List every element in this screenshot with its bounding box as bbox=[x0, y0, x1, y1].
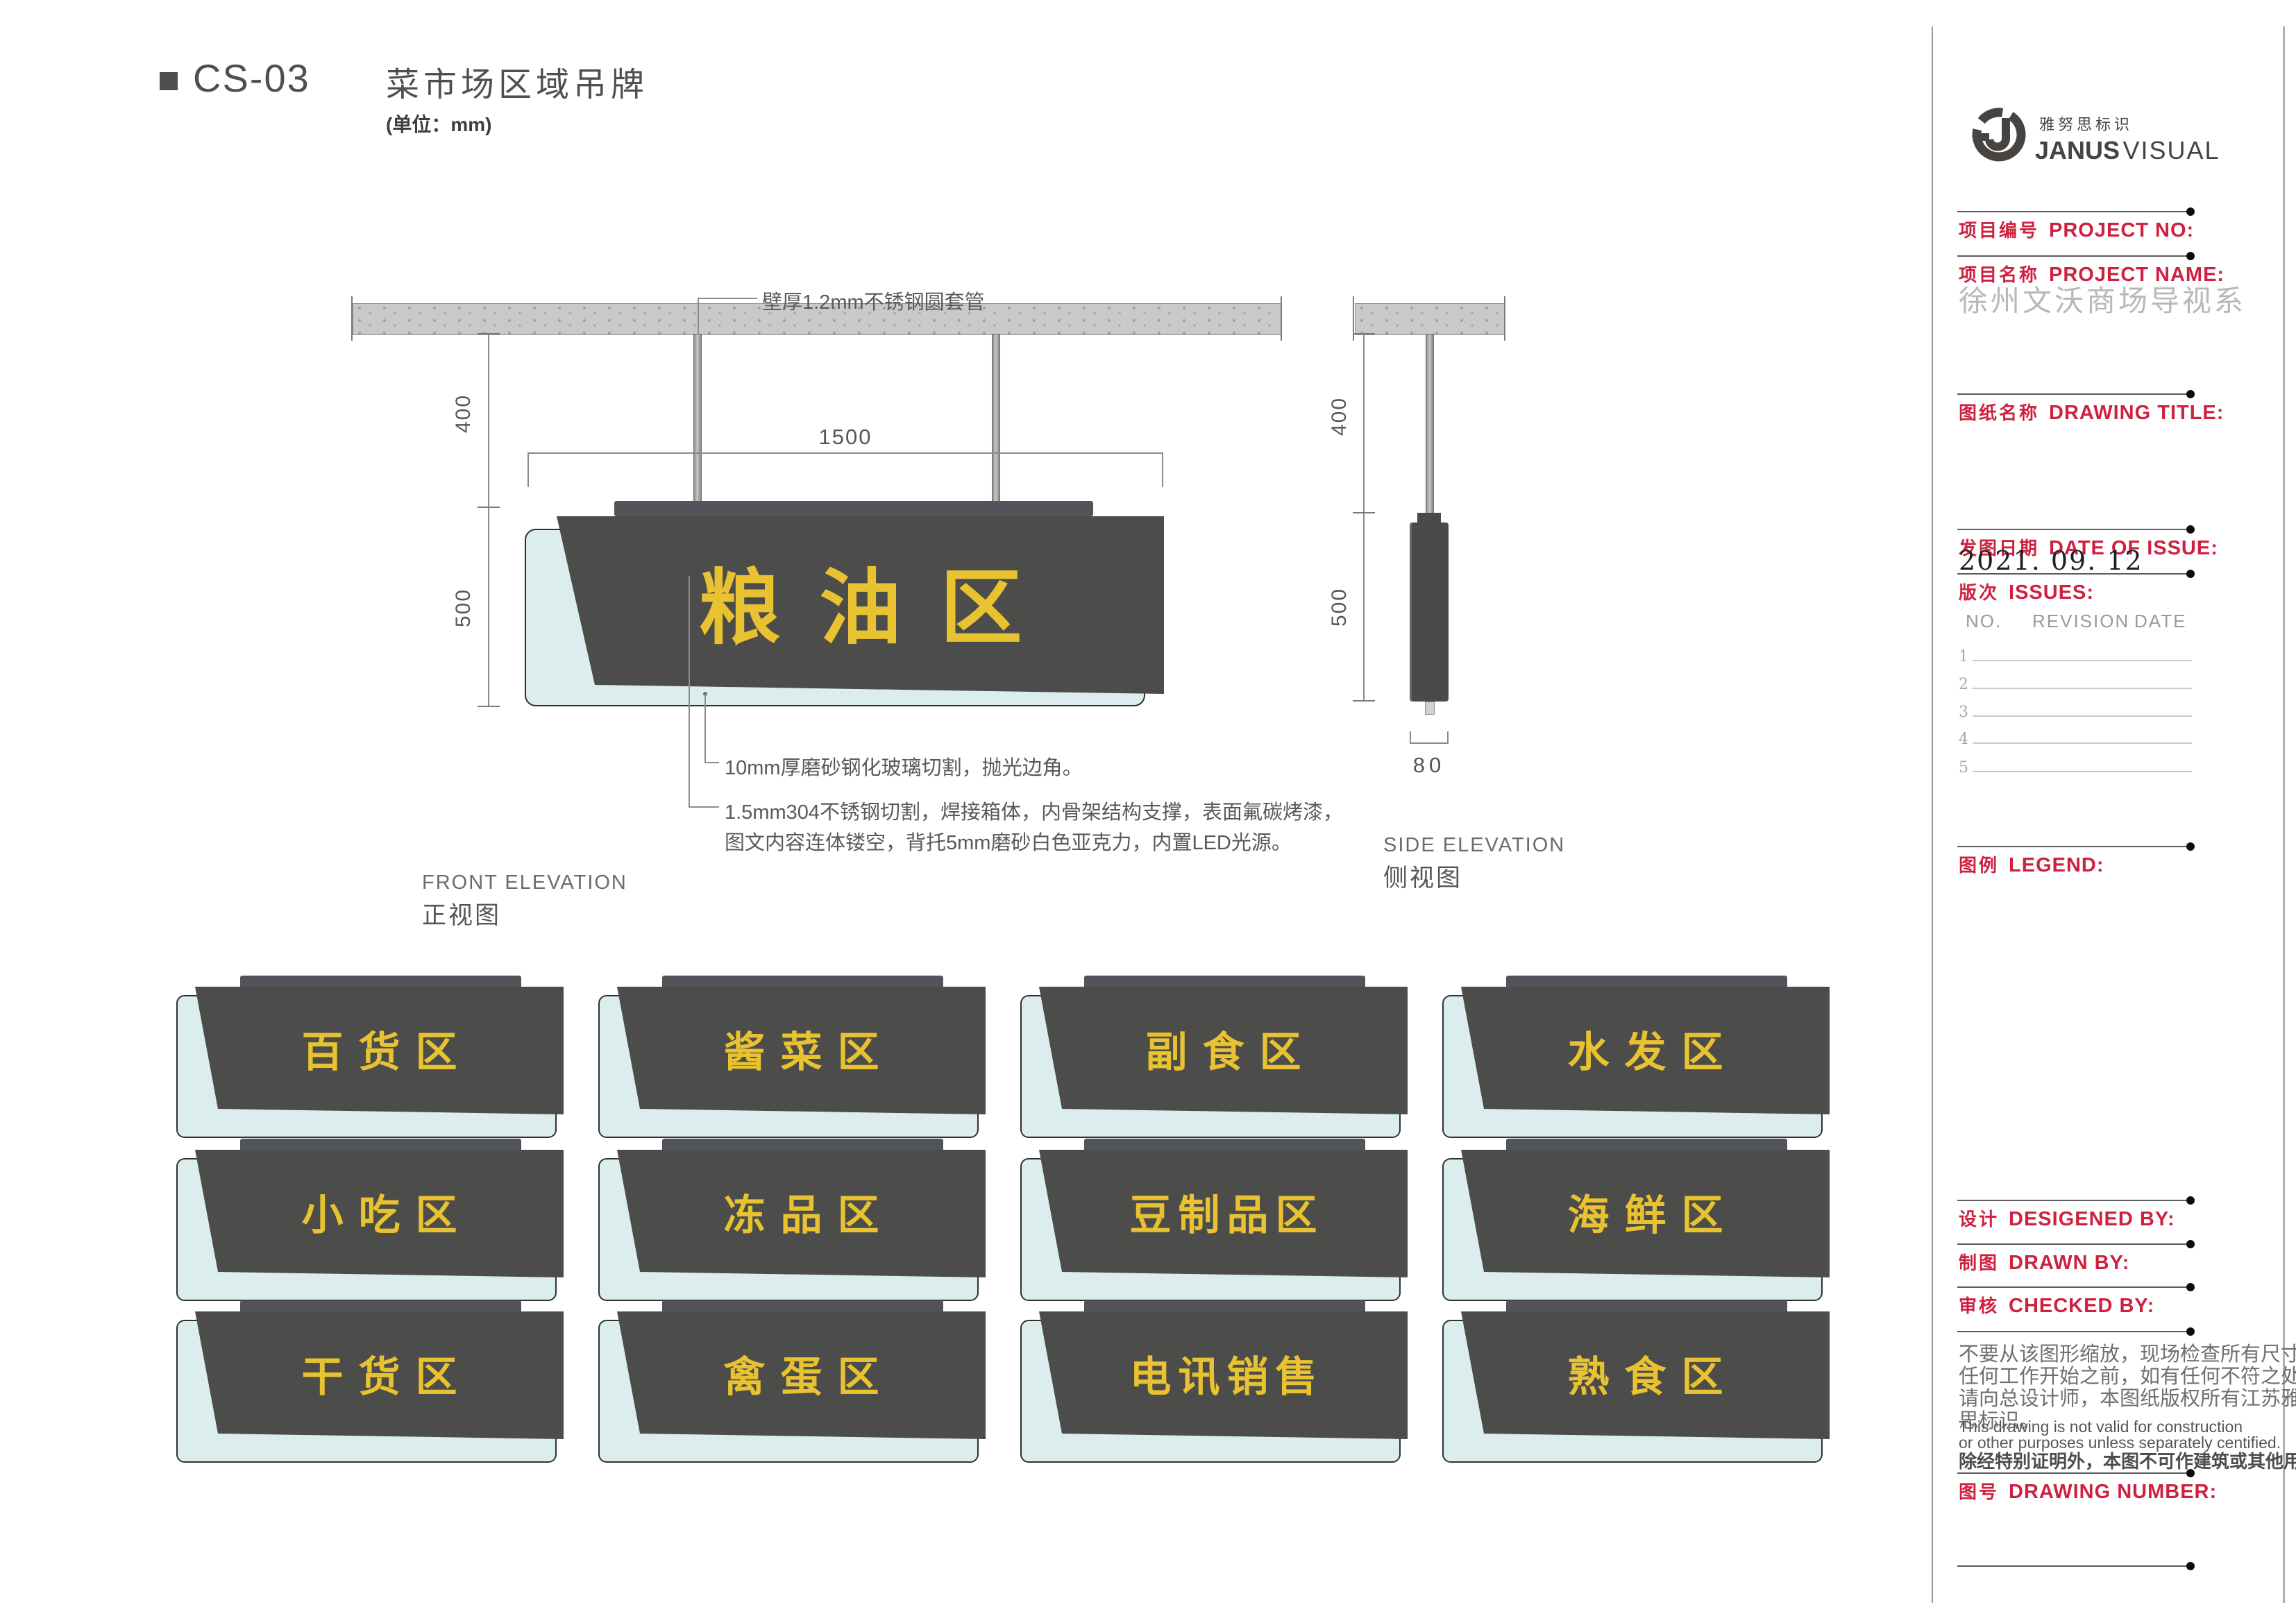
rule-bottom bbox=[1957, 1565, 2191, 1567]
rule-dot-project-no bbox=[2186, 207, 2195, 216]
side-view-label-en: SIDE ELEVATION bbox=[1383, 834, 1565, 857]
issue-row-line bbox=[1973, 715, 2192, 717]
front-view-label-en: FRONT ELEVATION bbox=[422, 872, 627, 894]
rule-dot-disclaimer bbox=[2186, 1327, 2195, 1336]
side-dim-tick-bottom bbox=[1353, 700, 1375, 702]
side-view-label-cn: 侧视图 bbox=[1383, 858, 1462, 894]
front-dim-line bbox=[488, 334, 489, 706]
field-drawing-title: 图纸名称 DRAWING TITLE: bbox=[1959, 399, 2224, 425]
side-hanging-rod bbox=[1426, 334, 1434, 514]
issues-header-no: NO. bbox=[1966, 611, 2002, 632]
brand-name-cn: 雅努思标识 bbox=[2039, 112, 2133, 135]
side-dim-hang: 400 bbox=[1328, 397, 1351, 436]
rule-disclaimer bbox=[1957, 1331, 2191, 1332]
steel-leader-horizontal bbox=[689, 806, 719, 808]
issues-header-revision: REVISION bbox=[2032, 611, 2129, 632]
steel-note-line2: 图文内容连体镂空，背托5mm磨砂白色亚克力，内置LED光源。 bbox=[725, 826, 1292, 856]
side-sign-flange bbox=[1417, 513, 1441, 523]
sign-label: 海鲜区 bbox=[1461, 1150, 1830, 1273]
front-width-bracket-left bbox=[527, 452, 529, 487]
front-width-bracket-right bbox=[1162, 452, 1163, 487]
sign-label: 小吃区 bbox=[195, 1150, 564, 1273]
titleblock-divider bbox=[1932, 26, 1933, 1603]
rule-drawn-by bbox=[1957, 1243, 2191, 1245]
sign-label: 电讯销售 bbox=[1039, 1311, 1408, 1435]
side-ceiling-right-tick bbox=[1504, 296, 1505, 341]
front-hanging-rod-right bbox=[992, 334, 1000, 503]
field-designed-cn: 设计 bbox=[1959, 1205, 1999, 1231]
brand-en-light: VISUAL bbox=[2122, 136, 2220, 164]
area-sign: 电讯销售 bbox=[1015, 1300, 1417, 1467]
sheet-title: 菜市场区域吊牌 bbox=[386, 57, 648, 105]
rule-dot-issues bbox=[2186, 570, 2195, 578]
side-depth-bracket-left bbox=[1410, 731, 1411, 744]
rule-designed-by bbox=[1957, 1200, 2191, 1201]
field-legend: 图例 LEGEND: bbox=[1959, 851, 2104, 877]
area-sign: 豆制品区 bbox=[1015, 1139, 1417, 1305]
front-view-label-cn: 正视图 bbox=[422, 896, 501, 931]
side-depth-bracket-right bbox=[1447, 731, 1449, 744]
front-dim-tick-top bbox=[478, 333, 500, 334]
rule-dot-bottom bbox=[2186, 1562, 2195, 1570]
issue-row-number: 3 bbox=[1959, 704, 1968, 721]
front-ceiling-right-tick bbox=[1281, 296, 1282, 341]
glass-leader-vertical bbox=[704, 694, 706, 763]
area-sign: 冻品区 bbox=[593, 1139, 995, 1305]
issues-header-date: DATE bbox=[2134, 611, 2186, 632]
rule-issues bbox=[1957, 573, 2191, 575]
field-designed-by: 设计 DESIGENED BY: bbox=[1959, 1205, 2175, 1231]
rule-dot-drawing-number bbox=[2186, 1469, 2195, 1477]
rule-dot-checked-by bbox=[2186, 1283, 2195, 1291]
area-sign: 干货区 bbox=[171, 1300, 573, 1467]
rule-checked-by bbox=[1957, 1286, 2191, 1288]
front-dim-height: 500 bbox=[452, 588, 475, 627]
rule-dot-drawn-by bbox=[2186, 1240, 2195, 1248]
sign-label: 豆制品区 bbox=[1039, 1150, 1408, 1273]
field-issues: 版次 ISSUES: bbox=[1959, 579, 2094, 604]
field-drawn-cn: 制图 bbox=[1959, 1249, 1999, 1275]
front-dim-tick-bottom bbox=[478, 706, 500, 707]
issue-row-line bbox=[1973, 771, 2192, 772]
area-sign: 副食区 bbox=[1015, 976, 1417, 1142]
sign-label: 冻品区 bbox=[617, 1150, 986, 1273]
header-bullet-icon bbox=[160, 72, 178, 90]
side-dim-tick-top bbox=[1353, 333, 1375, 334]
pipe-note: 壁厚1.2mm不锈钢圆套管 bbox=[762, 286, 985, 315]
sign-label: 酱菜区 bbox=[617, 987, 986, 1110]
field-drawing-number: 图号 DRAWING NUMBER: bbox=[1959, 1478, 2217, 1504]
field-project-no-en: PROJECT NO: bbox=[2049, 219, 2194, 242]
janus-logo-icon bbox=[1970, 105, 2028, 164]
brand-en-bold: JANUS bbox=[2035, 136, 2120, 164]
issue-row-line bbox=[1973, 660, 2192, 661]
sign-label: 干货区 bbox=[195, 1311, 564, 1435]
field-drawing-number-en: DRAWING NUMBER: bbox=[2009, 1481, 2217, 1504]
sign-label: 熟食区 bbox=[1461, 1311, 1830, 1435]
field-drawing-title-cn: 图纸名称 bbox=[1959, 399, 2039, 425]
field-legend-en: LEGEND: bbox=[2009, 854, 2104, 877]
project-name-value: 徐州文沃商场导视系 bbox=[1959, 278, 2246, 320]
steel-leader-vertical bbox=[689, 576, 690, 807]
pipe-leader-horizontal bbox=[698, 298, 757, 299]
field-checked-by: 审核 CHECKED BY: bbox=[1959, 1292, 2154, 1318]
field-project-no-cn: 项目编号 bbox=[1959, 216, 2039, 242]
rule-dot-date-of-issue bbox=[2186, 525, 2195, 534]
rule-date-of-issue bbox=[1957, 529, 2191, 530]
rule-drawing-title bbox=[1957, 393, 2191, 395]
sign-label: 禽蛋区 bbox=[617, 1311, 986, 1435]
side-sign-box bbox=[1410, 522, 1449, 702]
brand-name-en: JANUS VISUAL bbox=[2035, 136, 2220, 165]
issue-row-number: 4 bbox=[1959, 731, 1968, 748]
pipe-leader-vertical bbox=[698, 298, 699, 334]
side-dim-height: 500 bbox=[1328, 588, 1351, 627]
rule-project-name bbox=[1957, 255, 2191, 257]
field-legend-cn: 图例 bbox=[1959, 851, 1999, 877]
glass-note: 10mm厚磨砂钢化玻璃切割，抛光边角。 bbox=[725, 751, 1083, 781]
side-ceiling-slab bbox=[1355, 303, 1505, 335]
side-dim-tick-mid bbox=[1353, 512, 1375, 513]
area-sign: 水发区 bbox=[1437, 976, 1839, 1142]
rule-legend bbox=[1957, 846, 2191, 847]
issue-row-number: 5 bbox=[1959, 759, 1968, 776]
side-dim-depth: 80 bbox=[1413, 753, 1445, 778]
rule-project-no bbox=[1957, 211, 2191, 212]
rule-dot-designed-by bbox=[2186, 1196, 2195, 1205]
side-sign-bottom-stub bbox=[1425, 702, 1435, 715]
issue-row-number: 1 bbox=[1959, 648, 1968, 665]
rule-drawing-number bbox=[1957, 1472, 2191, 1474]
field-designed-en: DESIGENED BY: bbox=[2009, 1208, 2175, 1231]
area-sign: 熟食区 bbox=[1437, 1300, 1839, 1467]
front-dim-width: 1500 bbox=[819, 425, 872, 450]
rule-dot-project-name bbox=[2186, 252, 2195, 260]
field-issues-cn: 版次 bbox=[1959, 579, 1999, 604]
sign-label: 水发区 bbox=[1461, 987, 1830, 1110]
steel-note-line1: 1.5mm304不锈钢切割，焊接箱体，内骨架结构支撑，表面氟碳烤漆， bbox=[725, 796, 1343, 825]
front-dim-hang: 400 bbox=[452, 394, 475, 433]
issue-row-line bbox=[1973, 742, 2192, 744]
field-project-no: 项目编号 PROJECT NO: bbox=[1959, 216, 2194, 242]
sign-label: 副食区 bbox=[1039, 987, 1408, 1110]
glass-leader-horizontal bbox=[704, 762, 719, 763]
area-sign: 禽蛋区 bbox=[593, 1300, 995, 1467]
front-dim-tick-mid bbox=[478, 507, 500, 508]
side-depth-bracket bbox=[1410, 742, 1449, 744]
front-hanging-rod-left bbox=[693, 334, 702, 503]
field-issues-en: ISSUES: bbox=[2009, 581, 2094, 604]
area-sign: 小吃区 bbox=[171, 1139, 573, 1305]
field-checked-en: CHECKED BY: bbox=[2009, 1295, 2154, 1318]
field-drawing-title-en: DRAWING TITLE: bbox=[2049, 402, 2224, 425]
front-ceiling-left-tick bbox=[351, 296, 353, 341]
disclaimer-last-line: 除经特别证明外，本图不可作建筑或其他用途。 bbox=[1959, 1447, 2296, 1473]
area-sign: 海鲜区 bbox=[1437, 1139, 1839, 1305]
field-drawn-by: 制图 DRAWN BY: bbox=[1959, 1249, 2129, 1275]
area-sign: 百货区 bbox=[171, 976, 573, 1142]
main-sign-hanger-bar bbox=[614, 501, 1093, 516]
rule-dot-drawing-title bbox=[2186, 390, 2195, 398]
front-width-bracket bbox=[527, 452, 1163, 454]
sheet-code: CS-03 bbox=[193, 56, 310, 101]
sign-label: 百货区 bbox=[195, 987, 564, 1110]
issue-row-number: 2 bbox=[1959, 676, 1968, 693]
side-dim-line bbox=[1363, 334, 1365, 702]
field-drawn-en: DRAWN BY: bbox=[2009, 1252, 2129, 1275]
date-of-issue-value: 2021. 09. 12 bbox=[1959, 545, 2143, 576]
rule-dot-legend bbox=[2186, 842, 2195, 851]
field-checked-cn: 审核 bbox=[1959, 1292, 1999, 1318]
issue-row-line bbox=[1973, 688, 2192, 689]
main-sign-label: 粮油区 bbox=[557, 516, 1164, 685]
field-drawing-number-cn: 图号 bbox=[1959, 1478, 1999, 1504]
drawing-sheet: CS-03 菜市场区域吊牌 (单位：mm) 400 500 1500 壁厚1.2… bbox=[0, 0, 2296, 1623]
area-sign: 酱菜区 bbox=[593, 976, 995, 1142]
sheet-unit-note: (单位：mm) bbox=[386, 110, 491, 137]
